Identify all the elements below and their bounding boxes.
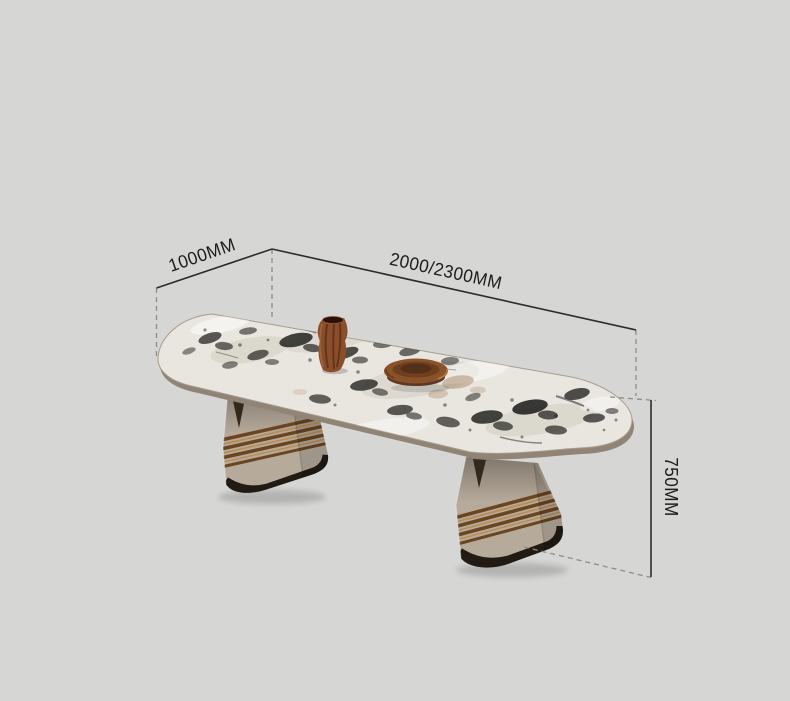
product-dimension-image: 1000MM 2000/2300MM 750MM [0,0,790,701]
height-dimension-label: 750MM [662,449,680,525]
table-leg-right [453,454,568,568]
wooden-tray [384,359,449,393]
dining-table [158,311,634,577]
table-scene [0,0,790,701]
